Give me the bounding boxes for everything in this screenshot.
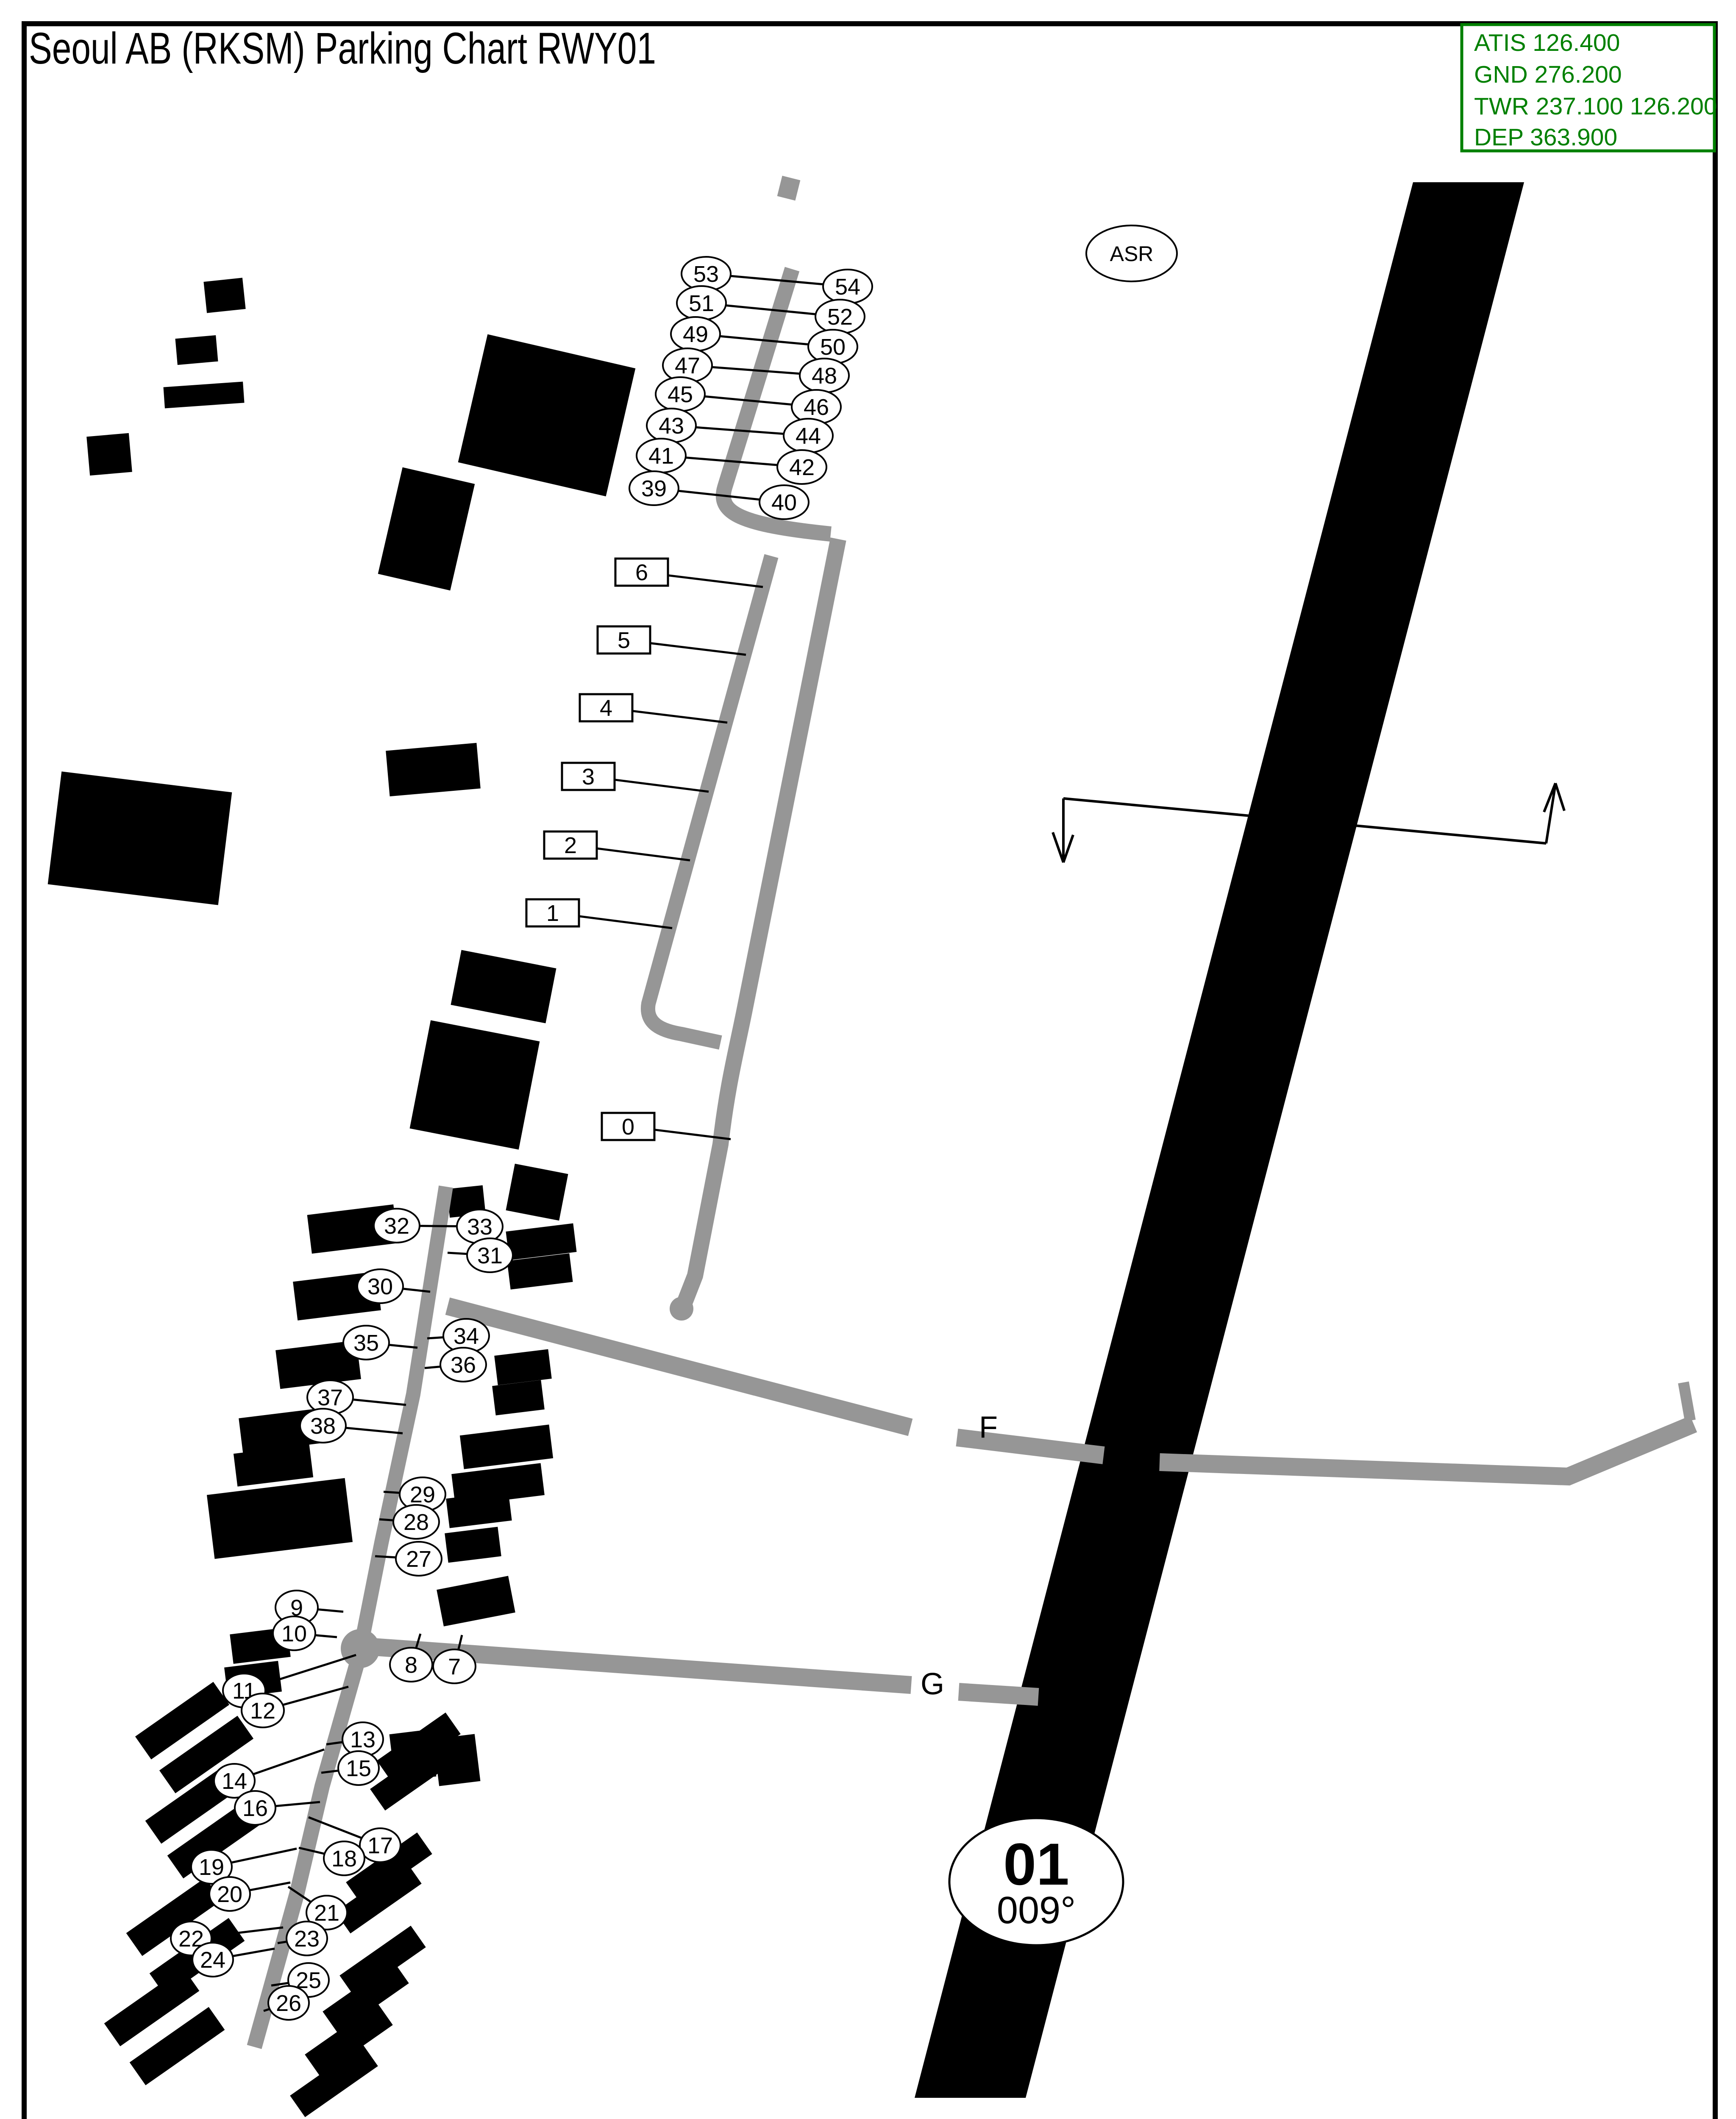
parking-spot-number: 42 xyxy=(789,455,815,480)
taxiway-g-label: G xyxy=(921,1667,944,1701)
building xyxy=(494,1349,552,1385)
taxiway-junction xyxy=(341,1629,380,1668)
parking-box-number: 3 xyxy=(582,764,595,790)
parking-spot-17: 17 xyxy=(360,1828,401,1862)
parking-spot-number: 48 xyxy=(812,363,837,389)
parking-box-3: 3 xyxy=(562,763,615,790)
parking-spot-number: 20 xyxy=(217,1882,242,1907)
parking-spot-number: 29 xyxy=(410,1482,435,1507)
parking-spot-45: 45 xyxy=(656,377,705,411)
parking-spot-number: 49 xyxy=(683,322,708,347)
parking-spot-number: 32 xyxy=(384,1213,409,1239)
parking-spot-number: 19 xyxy=(199,1855,224,1880)
parking-spot-43: 43 xyxy=(647,409,696,442)
pattern-arrow-line xyxy=(1053,832,1063,862)
parking-spot-number: 33 xyxy=(467,1214,492,1240)
parking-spot-number: 8 xyxy=(405,1652,417,1678)
parking-box-number: 1 xyxy=(546,901,559,926)
taxiway-segment xyxy=(786,178,791,198)
parking-spot-23: 23 xyxy=(287,1922,327,1955)
taxiway-segment xyxy=(360,1187,446,1649)
parking-box-number: 4 xyxy=(600,695,612,721)
parking-spot-26: 26 xyxy=(268,1986,309,2020)
parking-spot-number: 37 xyxy=(317,1385,343,1410)
parking-spot-12: 12 xyxy=(242,1694,284,1727)
parking-spot-50: 50 xyxy=(808,330,857,364)
parking-spot-18: 18 xyxy=(324,1841,364,1875)
taxiway-f-label: F xyxy=(979,1410,998,1444)
parking-spot-number: 17 xyxy=(367,1833,393,1858)
building xyxy=(163,382,244,409)
building xyxy=(410,1020,540,1149)
runway-01 xyxy=(915,182,1524,2098)
asr-symbol: ASR xyxy=(1086,225,1177,281)
parking-box-1: 1 xyxy=(526,899,579,926)
parking-spot-number: 40 xyxy=(771,490,797,515)
parking-spot-28: 28 xyxy=(393,1505,439,1539)
parking-spot-number: 28 xyxy=(403,1510,429,1535)
parking-spot-31: 31 xyxy=(467,1238,513,1272)
parking-spot-15: 15 xyxy=(338,1751,379,1785)
parking-spot-number: 16 xyxy=(242,1796,268,1821)
parking-spot-number: 53 xyxy=(693,261,719,287)
parking-spot-35: 35 xyxy=(343,1326,389,1360)
parking-spot-16: 16 xyxy=(235,1791,275,1825)
building xyxy=(48,771,232,905)
parking-spot-number: 26 xyxy=(276,1991,301,2016)
parking-spot-number: 54 xyxy=(835,274,860,300)
taxiway-segment xyxy=(1160,1424,1694,1477)
parking-spot-49: 49 xyxy=(671,317,720,351)
parking-spot-number: 30 xyxy=(367,1274,393,1299)
parking-spot-number: 13 xyxy=(350,1727,376,1752)
building xyxy=(506,1164,568,1221)
parking-spot-number: 46 xyxy=(804,395,829,420)
parking-spot-number: 35 xyxy=(353,1330,379,1356)
freq-atis: ATIS 126.400 xyxy=(1474,29,1620,56)
parking-spot-51: 51 xyxy=(677,286,726,320)
building xyxy=(86,433,132,476)
freq-dep: DEP 363.900 xyxy=(1474,124,1617,151)
parking-box-number: 6 xyxy=(635,560,648,585)
frequency-box: ATIS 126.400 GND 276.200 TWR 237.100 126… xyxy=(1462,25,1717,151)
parking-spot-number: 39 xyxy=(641,476,667,501)
parking-box-6: 6 xyxy=(615,559,668,586)
parking-box-number: 0 xyxy=(622,1114,634,1140)
parking-spot-number: 18 xyxy=(331,1846,357,1872)
runway-heading: 009° xyxy=(997,1889,1076,1932)
building xyxy=(492,1380,545,1415)
parking-spot-8: 8 xyxy=(390,1648,432,1682)
building xyxy=(437,1576,515,1626)
asr-label: ASR xyxy=(1110,242,1154,266)
parking-box-number: 2 xyxy=(564,833,577,858)
taxiway-segment xyxy=(682,539,838,1310)
parking-spot-54: 54 xyxy=(823,270,872,303)
runway-number: 01 xyxy=(1003,1831,1069,1897)
parking-spot-number: 15 xyxy=(346,1756,371,1781)
parking-spot-number: 10 xyxy=(281,1621,307,1646)
building xyxy=(378,467,475,591)
parking-spot-20: 20 xyxy=(209,1877,250,1911)
parking-spot-number: 45 xyxy=(668,382,693,407)
parking-chart: 5354515249504748454643444142394032333130… xyxy=(0,0,1736,2119)
freq-twr: TWR 237.100 126.200 xyxy=(1474,93,1717,120)
parking-spot-number: 14 xyxy=(222,1769,247,1794)
parking-spot-24: 24 xyxy=(192,1943,233,1977)
parking-spot-number: 36 xyxy=(451,1352,476,1378)
taxiway-segment xyxy=(1683,1382,1690,1421)
parking-spot-10: 10 xyxy=(273,1616,315,1650)
parking-spot-number: 24 xyxy=(200,1947,225,1973)
parking-spot-38: 38 xyxy=(300,1409,346,1443)
parking-spot-number: 34 xyxy=(453,1324,479,1349)
page-title: Seoul AB (RKSM) Parking Chart RWY01 xyxy=(29,24,656,73)
parking-box-4: 4 xyxy=(580,694,632,721)
parking-spot-number: 43 xyxy=(659,413,684,439)
building xyxy=(460,1424,553,1469)
parking-spot-46: 46 xyxy=(792,390,841,424)
parking-spot-41: 41 xyxy=(637,439,686,473)
parking-spot-32: 32 xyxy=(374,1209,420,1243)
parking-spot-number: 23 xyxy=(294,1926,320,1952)
parking-spot-number: 38 xyxy=(310,1413,336,1439)
building xyxy=(451,950,556,1023)
parking-spot-39: 39 xyxy=(629,471,679,505)
parking-spot-42: 42 xyxy=(777,450,826,484)
pattern-arrow-line xyxy=(1063,835,1073,862)
parking-spot-number: 27 xyxy=(406,1546,431,1572)
parking-spot-number: 47 xyxy=(675,353,700,378)
parking-spot-number: 51 xyxy=(689,291,714,316)
taxiway-segment xyxy=(959,1692,1038,1697)
runway-number-symbol: 01 009° xyxy=(949,1818,1123,1945)
parking-spot-27: 27 xyxy=(396,1542,442,1576)
parking-spot-36: 36 xyxy=(440,1348,486,1382)
parking-spot-number: 52 xyxy=(827,304,853,330)
parking-spot-30: 30 xyxy=(357,1269,403,1303)
parking-spot-7: 7 xyxy=(433,1649,476,1683)
freq-gnd: GND 276.200 xyxy=(1474,61,1622,88)
parking-box-5: 5 xyxy=(598,626,650,653)
building xyxy=(458,334,636,497)
parking-spot-number: 50 xyxy=(820,334,846,360)
parking-spot-48: 48 xyxy=(800,359,849,392)
building xyxy=(386,743,481,796)
building xyxy=(175,335,218,365)
parking-spot-52: 52 xyxy=(815,300,865,334)
parking-spot-44: 44 xyxy=(784,419,833,453)
building xyxy=(445,1527,501,1563)
parking-box-0: 0 xyxy=(602,1113,654,1140)
parking-spot-number: 31 xyxy=(477,1243,503,1268)
runway-layer xyxy=(915,182,1524,2098)
parking-spot-number: 12 xyxy=(250,1698,275,1724)
taxiway-junction xyxy=(670,1297,693,1321)
parking-box-number: 5 xyxy=(618,628,630,653)
parking-spot-40: 40 xyxy=(759,485,809,519)
pattern-arrow-line xyxy=(1555,783,1564,811)
building xyxy=(207,1478,353,1559)
parking-spot-number: 41 xyxy=(648,443,674,469)
parking-box-2: 2 xyxy=(544,831,597,859)
parking-spot-number: 44 xyxy=(796,423,821,449)
parking-spot-number: 7 xyxy=(448,1654,461,1680)
parking-spot-number: 21 xyxy=(314,1900,339,1926)
building xyxy=(203,278,245,313)
